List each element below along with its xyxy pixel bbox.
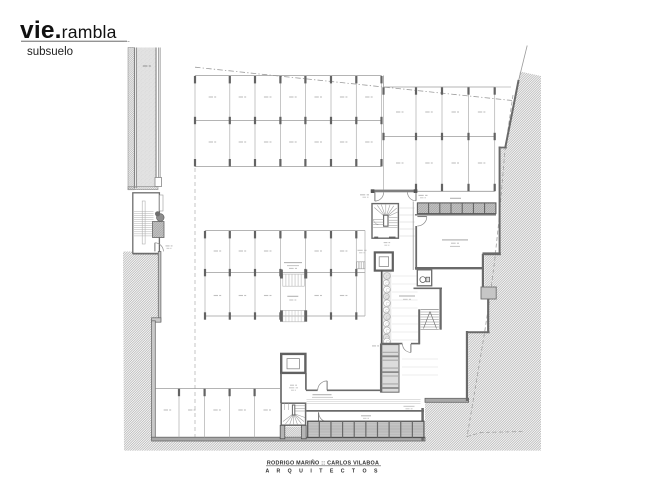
svg-text:vie.rambla: vie.rambla [20, 17, 117, 44]
svg-text:A R Q U I T E C T O S: A R Q U I T E C T O S [266, 469, 381, 475]
svg-text:subsuelo: subsuelo [27, 46, 73, 58]
svg-text:RODRIGO MARIÑO :: CARLOS VILAB: RODRIGO MARIÑO :: CARLOS VILABOA [267, 459, 379, 466]
